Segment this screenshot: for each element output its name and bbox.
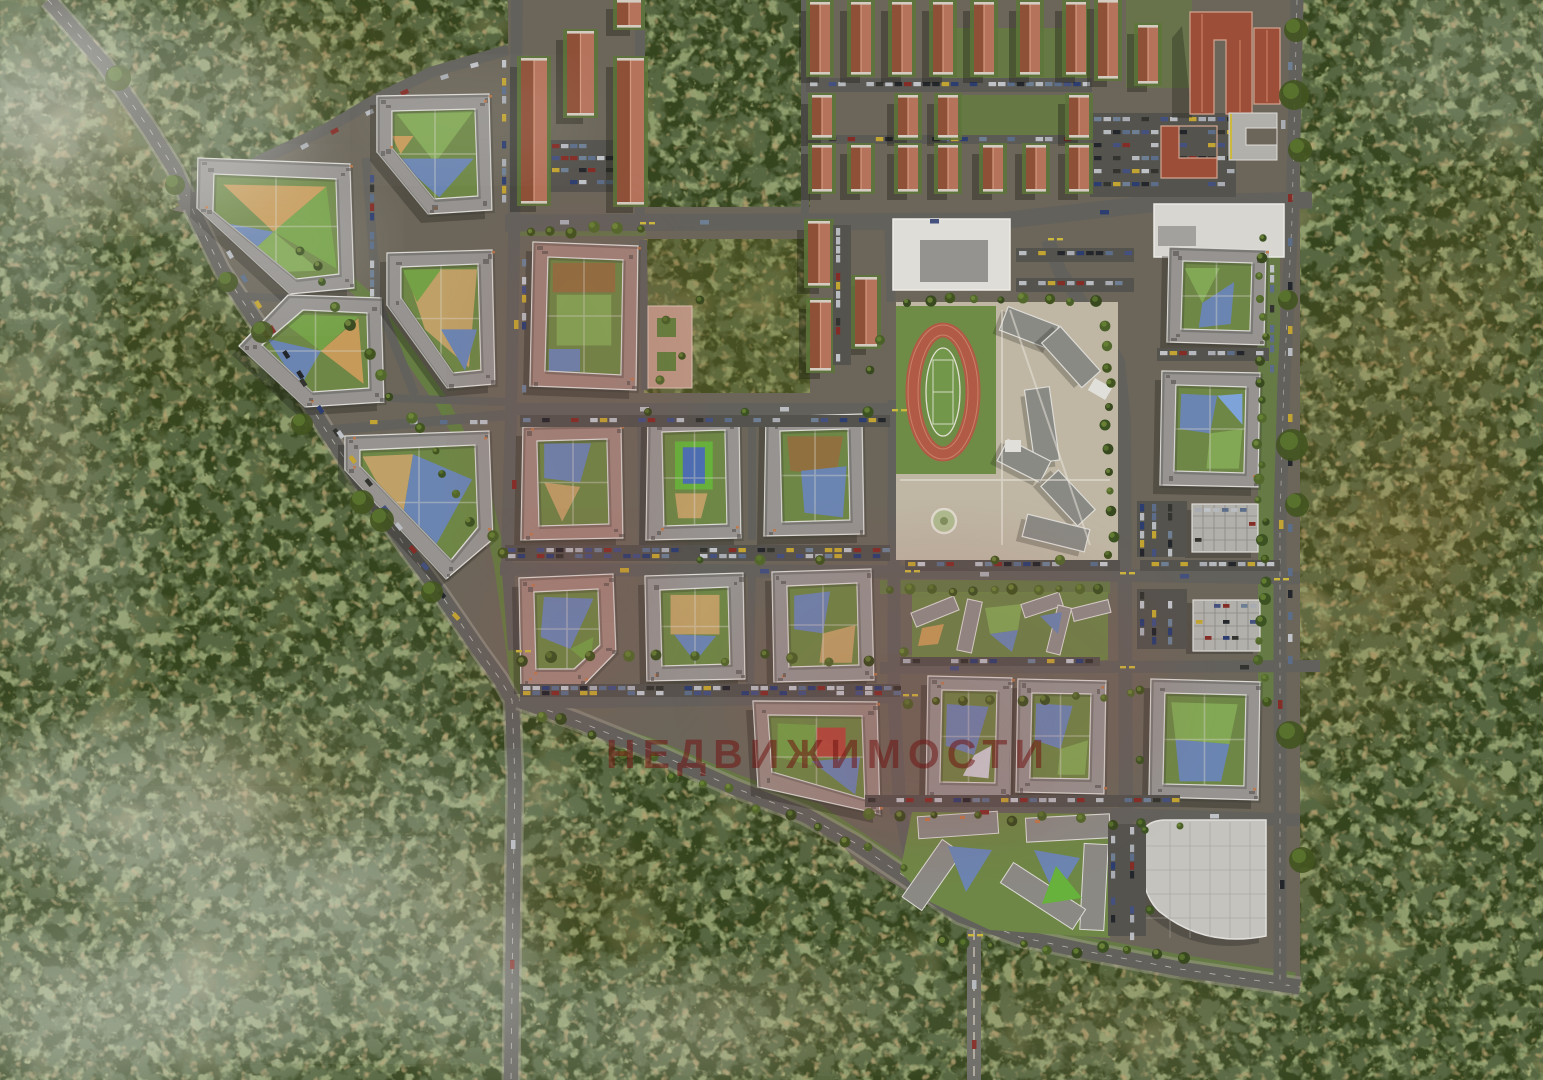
- svg-text:НЕДВИЖИМОСТИ: НЕДВИЖИМОСТИ: [606, 731, 1051, 777]
